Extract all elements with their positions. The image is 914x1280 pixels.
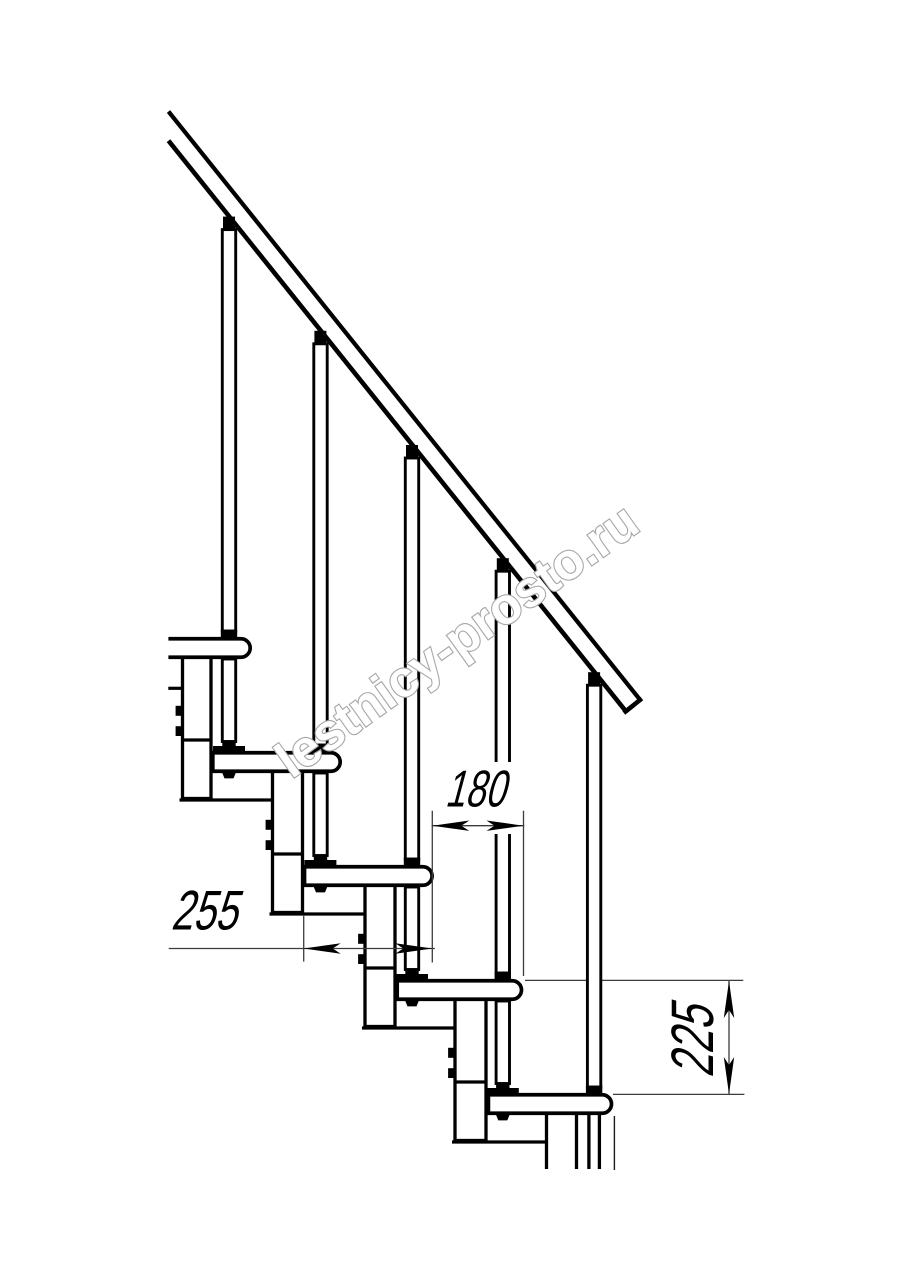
svg-text:255: 255 bbox=[167, 879, 250, 942]
svg-text:225: 225 bbox=[659, 993, 726, 1082]
